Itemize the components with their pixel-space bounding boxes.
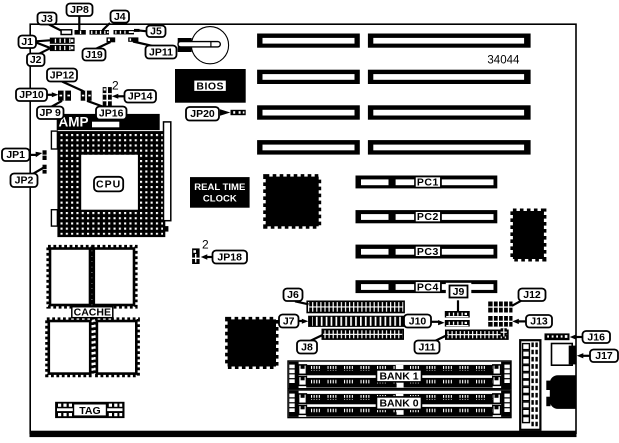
svg-text:JP12: JP12 <box>50 69 75 81</box>
svg-text:2: 2 <box>112 79 119 93</box>
svg-text:J6: J6 <box>287 289 299 301</box>
svg-text:PC1: PC1 <box>417 177 439 189</box>
svg-text:JP8: JP8 <box>70 4 89 16</box>
svg-text:J2: J2 <box>30 54 42 66</box>
svg-text:34044: 34044 <box>487 55 520 67</box>
svg-text:JP18: JP18 <box>217 251 242 263</box>
svg-text:J16: J16 <box>587 331 605 343</box>
svg-text:J5: J5 <box>150 26 162 38</box>
svg-text:J3: J3 <box>41 13 53 25</box>
svg-text:JP14: JP14 <box>128 91 153 103</box>
svg-text:J7: J7 <box>283 315 295 327</box>
svg-text:PC4: PC4 <box>417 281 439 293</box>
svg-text:J1: J1 <box>21 36 33 48</box>
svg-text:J8: J8 <box>301 341 313 353</box>
svg-text:J9: J9 <box>453 286 465 298</box>
svg-text:J13: J13 <box>530 316 548 328</box>
svg-text:JP1: JP1 <box>6 149 25 161</box>
svg-text:J11: J11 <box>419 341 436 353</box>
svg-text:J12: J12 <box>523 289 541 301</box>
svg-text:JP2: JP2 <box>15 175 34 187</box>
svg-text:TAG: TAG <box>79 405 100 417</box>
svg-text:2: 2 <box>202 237 209 251</box>
svg-text:JP20: JP20 <box>190 108 215 120</box>
svg-text:JP 9: JP 9 <box>39 107 61 119</box>
svg-text:JP11: JP11 <box>149 46 173 58</box>
svg-text:JP16: JP16 <box>99 107 124 119</box>
svg-text:BANK 0: BANK 0 <box>379 398 418 410</box>
svg-text:J17: J17 <box>595 350 613 362</box>
svg-text:REAL TIME: REAL TIME <box>194 182 245 193</box>
svg-text:JP10: JP10 <box>19 89 44 101</box>
svg-text:CACHE: CACHE <box>74 307 111 319</box>
svg-text:CLOCK: CLOCK <box>203 194 237 205</box>
svg-text:J4: J4 <box>114 11 126 23</box>
svg-text:BANK 1: BANK 1 <box>379 370 418 382</box>
svg-text:BIOS: BIOS <box>196 80 224 92</box>
svg-text:CPU: CPU <box>96 179 121 191</box>
svg-text:J10: J10 <box>409 315 427 327</box>
svg-text:PC2: PC2 <box>417 211 439 223</box>
svg-text:PC3: PC3 <box>417 246 439 258</box>
svg-text:J19: J19 <box>85 49 103 61</box>
